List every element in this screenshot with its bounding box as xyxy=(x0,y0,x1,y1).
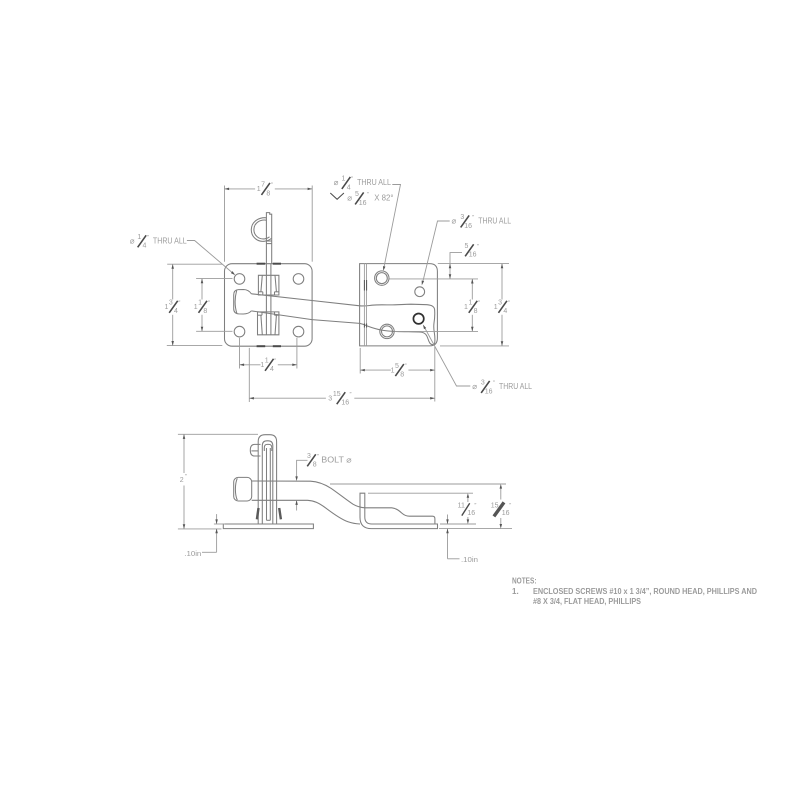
svg-text:⌀: ⌀ xyxy=(130,237,135,246)
svg-text:”: ” xyxy=(477,244,479,250)
svg-text:ENCLOSED SCREWS #10 x 1 3/4”,: ENCLOSED SCREWS #10 x 1 3/4”, ROUND HEAD… xyxy=(533,587,757,596)
svg-text:3: 3 xyxy=(481,380,485,387)
svg-text:”: ” xyxy=(493,381,495,387)
svg-text:3: 3 xyxy=(169,300,173,307)
svg-text:THRU ALL: THRU ALL xyxy=(153,237,187,246)
svg-text:THRU ALL: THRU ALL xyxy=(357,178,391,187)
svg-text:⌀: ⌀ xyxy=(334,178,339,187)
svg-text:16: 16 xyxy=(467,510,475,517)
svg-text:3: 3 xyxy=(460,214,464,221)
svg-text:⌀: ⌀ xyxy=(347,194,352,203)
svg-text:1: 1 xyxy=(464,304,468,311)
svg-text:1: 1 xyxy=(198,300,202,307)
svg-text:8: 8 xyxy=(474,308,478,315)
svg-text:”: ” xyxy=(208,301,210,307)
svg-text:”: ” xyxy=(472,216,474,222)
svg-text:”: ” xyxy=(178,301,180,307)
svg-text:16: 16 xyxy=(469,252,477,259)
svg-text:1: 1 xyxy=(260,362,264,369)
svg-text:5: 5 xyxy=(395,363,399,370)
svg-text:”: ” xyxy=(274,359,276,365)
svg-text:”: ” xyxy=(271,183,273,189)
svg-text:16: 16 xyxy=(341,400,349,407)
svg-text:1: 1 xyxy=(164,304,168,311)
svg-text:4: 4 xyxy=(347,184,351,191)
svg-text:.10in: .10in xyxy=(461,557,478,564)
svg-text:”: ” xyxy=(509,503,511,509)
svg-text:5: 5 xyxy=(464,243,468,250)
svg-text:8: 8 xyxy=(400,372,404,379)
svg-text:3: 3 xyxy=(328,395,332,402)
svg-text:”: ” xyxy=(147,235,149,241)
svg-text:16: 16 xyxy=(464,223,472,230)
svg-text:1: 1 xyxy=(265,358,269,365)
svg-text:4: 4 xyxy=(270,366,274,373)
svg-text:4: 4 xyxy=(174,308,178,315)
svg-text:⌀: ⌀ xyxy=(472,382,477,391)
svg-text:1: 1 xyxy=(342,176,346,183)
svg-text:X 82°: X 82° xyxy=(374,194,393,203)
svg-text:8: 8 xyxy=(203,308,207,315)
svg-text:5: 5 xyxy=(355,191,359,198)
svg-text:3: 3 xyxy=(307,453,311,460)
svg-text:”: ” xyxy=(508,301,510,307)
svg-text:7: 7 xyxy=(261,182,265,189)
svg-text:16: 16 xyxy=(359,200,367,207)
svg-text:3: 3 xyxy=(498,300,502,307)
svg-text:”: ” xyxy=(317,454,319,460)
svg-text:⌀: ⌀ xyxy=(452,217,457,226)
svg-text:”: ” xyxy=(185,474,187,480)
svg-text:”: ” xyxy=(405,364,407,370)
svg-text:1.: 1. xyxy=(512,587,519,596)
svg-text:THRU ALL: THRU ALL xyxy=(499,382,532,391)
svg-text:BOLT ⌀: BOLT ⌀ xyxy=(321,456,351,465)
svg-text:4: 4 xyxy=(143,243,147,250)
svg-text:.10in: .10in xyxy=(184,551,201,558)
svg-text:1: 1 xyxy=(137,234,141,241)
svg-text:”: ” xyxy=(350,392,352,398)
svg-text:8: 8 xyxy=(313,462,317,469)
svg-text:NOTES:: NOTES: xyxy=(512,576,537,585)
svg-text:15: 15 xyxy=(333,391,341,398)
svg-text:11: 11 xyxy=(458,502,465,509)
svg-text:1: 1 xyxy=(468,300,472,307)
svg-text:”: ” xyxy=(474,503,476,509)
svg-text:16: 16 xyxy=(502,510,510,517)
svg-text:8: 8 xyxy=(266,190,270,197)
svg-text:#8 X 3/4, FLAT HEAD, PHILLIPS: #8 X 3/4, FLAT HEAD, PHILLIPS xyxy=(533,597,642,606)
svg-text:1: 1 xyxy=(391,367,395,374)
svg-text:1: 1 xyxy=(194,304,198,311)
svg-text:”: ” xyxy=(351,177,353,183)
svg-text:1: 1 xyxy=(494,304,498,311)
svg-text:”: ” xyxy=(367,193,369,199)
svg-text:1: 1 xyxy=(257,186,261,193)
svg-text:2: 2 xyxy=(180,477,184,484)
svg-text:15: 15 xyxy=(491,502,499,509)
svg-text:THRU ALL: THRU ALL xyxy=(478,217,511,226)
svg-text:”: ” xyxy=(478,301,480,307)
svg-text:16: 16 xyxy=(485,388,493,395)
svg-text:4: 4 xyxy=(503,308,507,315)
